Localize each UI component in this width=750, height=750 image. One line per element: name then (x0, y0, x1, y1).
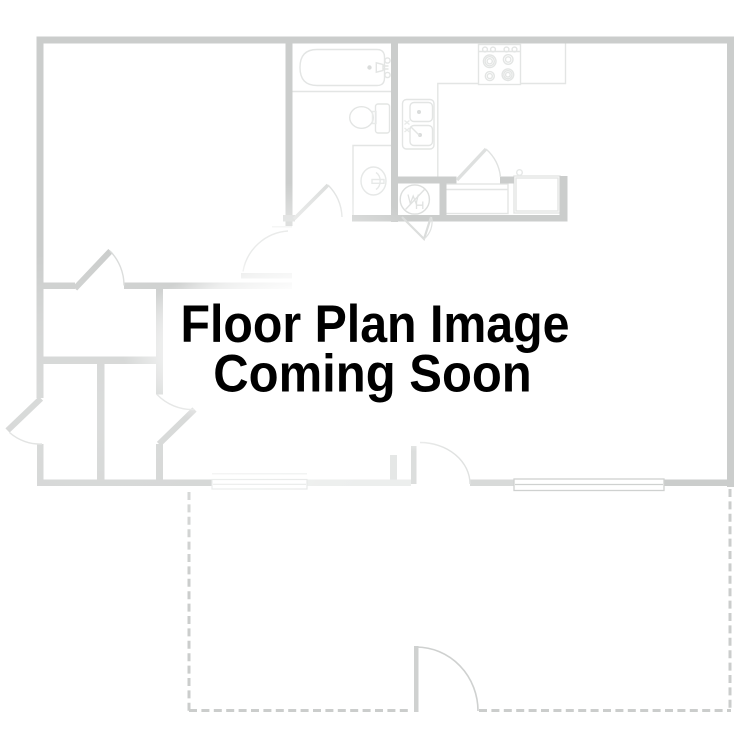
svg-text:Coming Soon: Coming Soon (213, 345, 532, 404)
